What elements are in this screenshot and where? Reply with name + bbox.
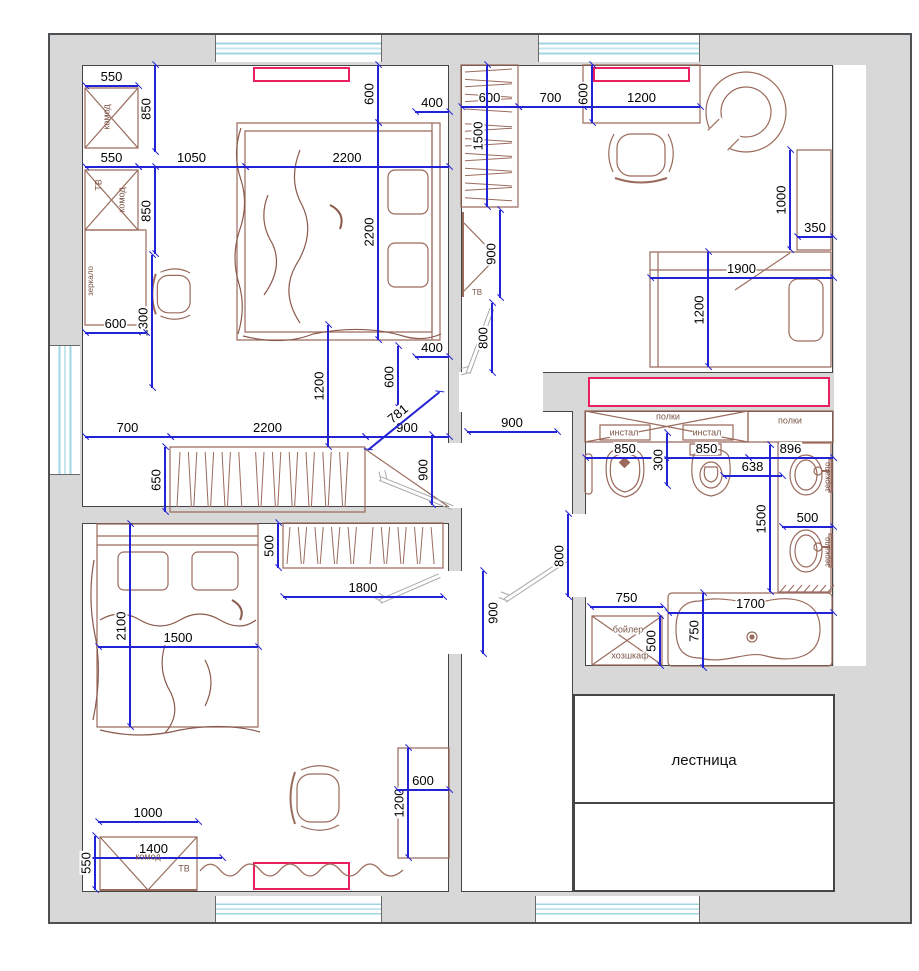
label-полки: полки bbox=[778, 417, 802, 426]
label-зеркало: зеркало bbox=[824, 462, 832, 492]
chair-bedroom2 bbox=[291, 766, 340, 831]
chair-bedroom1 bbox=[152, 269, 190, 319]
label-хозшкаф: хозшкаф bbox=[611, 652, 648, 661]
label-инстал: инстал bbox=[693, 429, 722, 438]
label-комод: комод bbox=[135, 853, 160, 862]
wardrobe-bedroom2 bbox=[283, 523, 443, 568]
furniture-layer bbox=[0, 0, 919, 971]
label-ТВ: ТВ bbox=[178, 865, 190, 874]
armchair-bedroom3 bbox=[687, 55, 803, 171]
label-полки: полки bbox=[656, 413, 680, 422]
komod-1-bedroom1 bbox=[85, 88, 138, 148]
wardrobe-bedroom1 bbox=[170, 447, 365, 512]
label-зеркало: зеркало bbox=[87, 266, 95, 296]
curtain-bedroom2 bbox=[200, 864, 403, 876]
label-ТВ: ТВ bbox=[95, 179, 104, 191]
label-комод: комод bbox=[103, 104, 112, 129]
chair-bedroom3 bbox=[609, 134, 674, 183]
label-бойлер: бойлер bbox=[613, 626, 643, 635]
label-ТВ: ТВ bbox=[472, 289, 482, 297]
label-инстал: инстал bbox=[610, 429, 639, 438]
label-комод: комод bbox=[118, 187, 127, 212]
floor-plan: лестница bbox=[0, 0, 919, 971]
label-зеркало: зеркало bbox=[824, 537, 832, 567]
cabinet-bedroom3 bbox=[797, 150, 831, 250]
